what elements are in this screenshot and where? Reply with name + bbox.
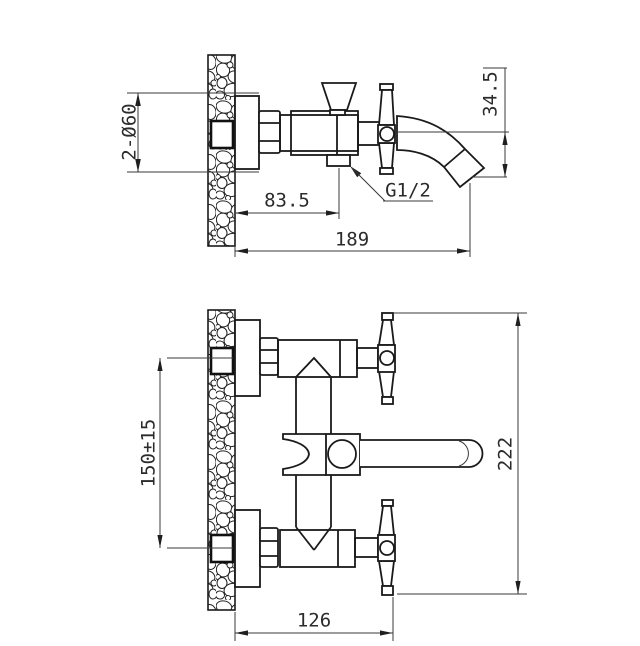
lower-wall-flange xyxy=(235,510,260,587)
spout-front xyxy=(360,440,483,467)
upper-valve-body xyxy=(278,340,357,377)
dim-label-outlet-thread: G1/2 xyxy=(385,180,431,202)
dim-label-body-width: 126 xyxy=(297,610,331,632)
upper-hex-nut xyxy=(260,338,278,375)
shower-outlet xyxy=(327,155,350,166)
upper-inlet-square xyxy=(211,348,233,374)
lower-cross-handle xyxy=(355,500,395,595)
spout-side xyxy=(397,116,484,187)
technical-drawing-page: 2-Ø60 83.5 189 34.5 xyxy=(0,0,640,646)
lower-valve-body xyxy=(280,530,355,567)
dim-label-wall-to-outlet: 83.5 xyxy=(264,190,310,212)
side-view: 2-Ø60 83.5 189 34.5 xyxy=(119,55,510,257)
dim-body-width: 126 xyxy=(235,597,393,641)
wall-flange xyxy=(235,96,259,169)
diverter-center xyxy=(283,434,360,475)
hex-nut xyxy=(259,111,280,153)
dim-label-total-height: 222 xyxy=(495,437,517,471)
dim-label-spout-drop: 34.5 xyxy=(480,71,502,117)
upper-cross-handle xyxy=(357,313,395,404)
dim-label-inlet-center-distance: 150±15 xyxy=(138,419,160,488)
wall-section xyxy=(208,55,235,246)
faucet-dimension-drawing: 2-Ø60 83.5 189 34.5 xyxy=(0,0,640,646)
upper-wall-flange xyxy=(235,320,260,396)
front-view: 150±15 222 126 xyxy=(138,310,528,641)
dim-wall-to-outlet: 83.5 xyxy=(235,168,339,219)
dim-label-total-reach: 189 xyxy=(335,229,369,251)
cross-handle-side xyxy=(358,84,395,174)
inlet-square xyxy=(211,121,233,148)
dim-label-flange-diameter: 2-Ø60 xyxy=(119,103,141,160)
lower-hex-nut xyxy=(260,528,278,567)
valve-body xyxy=(280,111,358,155)
